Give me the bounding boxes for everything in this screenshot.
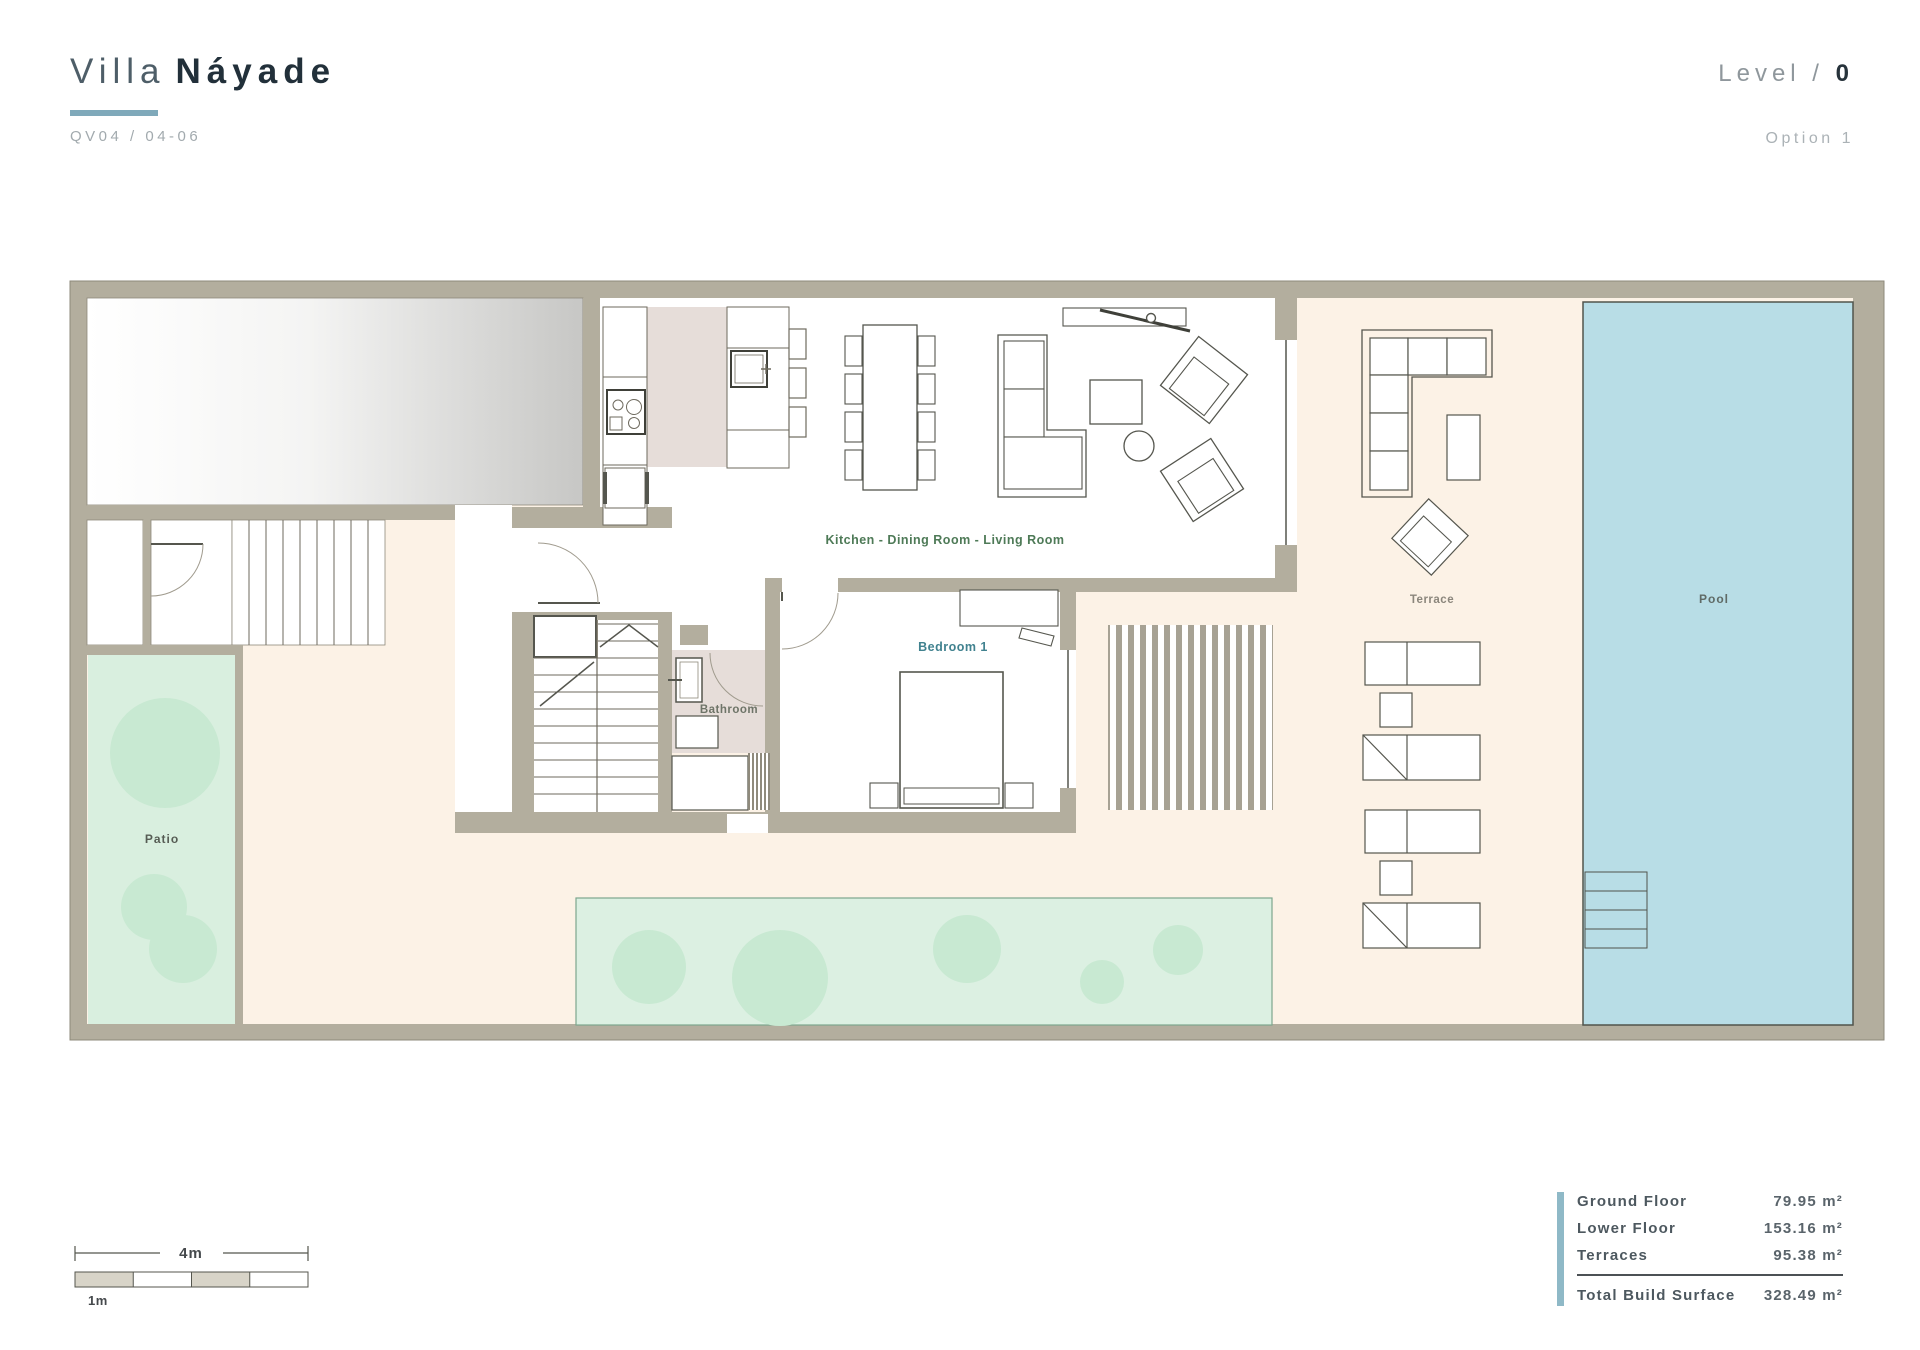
entry-rooms <box>87 520 385 655</box>
garage <box>87 298 600 528</box>
staircase <box>512 612 672 833</box>
wall-pier <box>680 625 708 645</box>
corridor <box>455 505 512 833</box>
lounger-table <box>1380 861 1412 895</box>
garden-shrub <box>612 930 686 1004</box>
room-label-patio: Patio <box>145 832 179 846</box>
coffee-table <box>1090 380 1142 424</box>
area-label: Lower Floor <box>1577 1215 1676 1242</box>
nightstand <box>1005 783 1033 808</box>
garden-shrub <box>933 915 1001 983</box>
floor-plan: Pool <box>0 0 1920 1350</box>
area-total-value: 328.49 m² <box>1764 1282 1843 1309</box>
living-right-wall <box>1275 298 1297 592</box>
areas-accent-bar <box>1557 1192 1564 1306</box>
lounger <box>1363 903 1480 948</box>
area-value: 79.95 m² <box>1773 1188 1843 1215</box>
garden-bed <box>576 898 1272 1026</box>
areas-separator <box>1577 1274 1843 1276</box>
elevator <box>534 616 596 657</box>
kitchen-tile-floor <box>647 307 727 467</box>
garden-shrub <box>1153 925 1203 975</box>
lounger <box>1365 642 1480 685</box>
room-label-pool: Pool <box>1699 592 1729 606</box>
bathroom-wc <box>676 716 718 748</box>
patio: Patio <box>88 655 243 1024</box>
lounger-table <box>1380 693 1412 727</box>
room-label-terrace: Terrace <box>1410 594 1454 606</box>
nightstand <box>870 783 898 808</box>
bar-stool <box>789 407 806 437</box>
area-value: 95.38 m² <box>1773 1242 1843 1269</box>
bar-stool <box>789 329 806 359</box>
lounger <box>1365 810 1480 853</box>
area-value: 153.16 m² <box>1764 1215 1843 1242</box>
pool: Pool <box>1583 302 1853 1025</box>
bed-pillow <box>904 788 999 804</box>
area-row: Lower Floor 153.16 m² <box>1577 1215 1843 1242</box>
area-row: Terraces 95.38 m² <box>1577 1242 1843 1269</box>
wardrobe <box>960 590 1058 626</box>
exterior-stairs <box>232 520 385 645</box>
scale-unit-label: 1m <box>88 1293 108 1308</box>
terrace-table <box>1447 415 1480 480</box>
deck <box>1108 625 1273 810</box>
area-label: Ground Floor <box>1577 1188 1687 1215</box>
room-label-bathroom: Bathroom <box>700 704 758 716</box>
shower-tray <box>672 756 748 810</box>
patio-tree <box>149 915 217 983</box>
page: VillaNáyade QV04 / 04-06 Level / 0 Optio… <box>0 0 1920 1350</box>
room-label-bedroom: Bedroom 1 <box>918 640 988 654</box>
areas-table: Ground Floor 79.95 m² Lower Floor 153.16… <box>1577 1188 1843 1309</box>
area-label: Terraces <box>1577 1242 1648 1269</box>
area-row: Ground Floor 79.95 m² <box>1577 1188 1843 1215</box>
scale-total-label: 4m <box>179 1245 203 1262</box>
area-total-label: Total Build Surface <box>1577 1282 1735 1309</box>
garden-shrub <box>1080 960 1124 1004</box>
dishwasher <box>605 468 645 508</box>
shower-screen <box>748 753 770 810</box>
area-total-row: Total Build Surface 328.49 m² <box>1577 1282 1843 1309</box>
dining-table <box>863 325 917 490</box>
bathroom: Bathroom <box>668 625 770 810</box>
garden-shrub <box>732 930 828 1026</box>
patio-tree <box>110 698 220 808</box>
bar-stool <box>789 368 806 398</box>
scale-bar: 4m 1m <box>75 1245 308 1308</box>
side-table <box>1124 431 1154 461</box>
room-label-kitchen-living: Kitchen - Dining Room - Living Room <box>825 533 1064 547</box>
pool-steps <box>1585 872 1647 948</box>
lounger <box>1363 735 1480 780</box>
